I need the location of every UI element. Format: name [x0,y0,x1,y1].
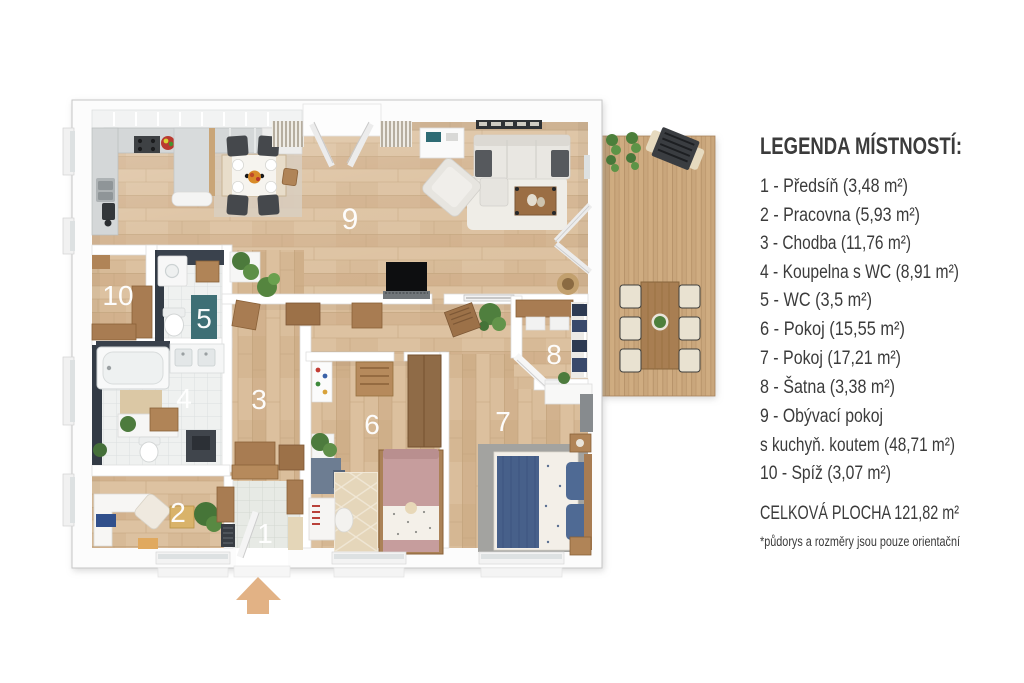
svg-text:9: 9 [342,203,359,236]
svg-text:8: 8 [546,339,562,370]
svg-text:1: 1 [257,518,273,549]
svg-text:4 - Koupelna s WC (8,91 m²): 4 - Koupelna s WC (8,91 m²) [760,262,959,283]
svg-text:2 - Pracovna (5,93 m²): 2 - Pracovna (5,93 m²) [760,205,920,226]
svg-text:CELKOVÁ PLOCHA 121,82 m²: CELKOVÁ PLOCHA 121,82 m² [760,503,959,524]
svg-text:1 - Předsíň (3,48 m²): 1 - Předsíň (3,48 m²) [760,176,908,197]
svg-text:7: 7 [495,406,511,437]
svg-text:6 - Pokoj (15,55 m²): 6 - Pokoj (15,55 m²) [760,319,905,340]
svg-text:s kuchyň. koutem (48,71 m²): s kuchyň. koutem (48,71 m²) [760,435,955,456]
svg-text:10 - Spíž (3,07 m²): 10 - Spíž (3,07 m²) [760,463,891,484]
svg-text:7 - Pokoj (17,21 m²): 7 - Pokoj (17,21 m²) [760,348,901,369]
svg-text:LEGENDA MÍSTNOSTÍ:: LEGENDA MÍSTNOSTÍ: [760,132,962,160]
svg-text:3: 3 [251,384,267,415]
svg-text:10: 10 [102,280,133,311]
svg-text:8 - Šatna (3,38 m²): 8 - Šatna (3,38 m²) [760,376,895,398]
svg-text:5 - WC (3,5 m²): 5 - WC (3,5 m²) [760,290,872,311]
svg-text:5: 5 [196,303,212,334]
svg-text:2: 2 [170,497,186,528]
svg-text:*půdorys a rozměry jsou pouze: *půdorys a rozměry jsou pouze orientační [760,534,960,549]
svg-text:9 - Obývací pokoj: 9 - Obývací pokoj [760,406,883,427]
svg-text:6: 6 [364,409,380,440]
svg-text:4: 4 [176,383,192,414]
svg-text:3 - Chodba (11,76 m²): 3 - Chodba (11,76 m²) [760,233,911,254]
